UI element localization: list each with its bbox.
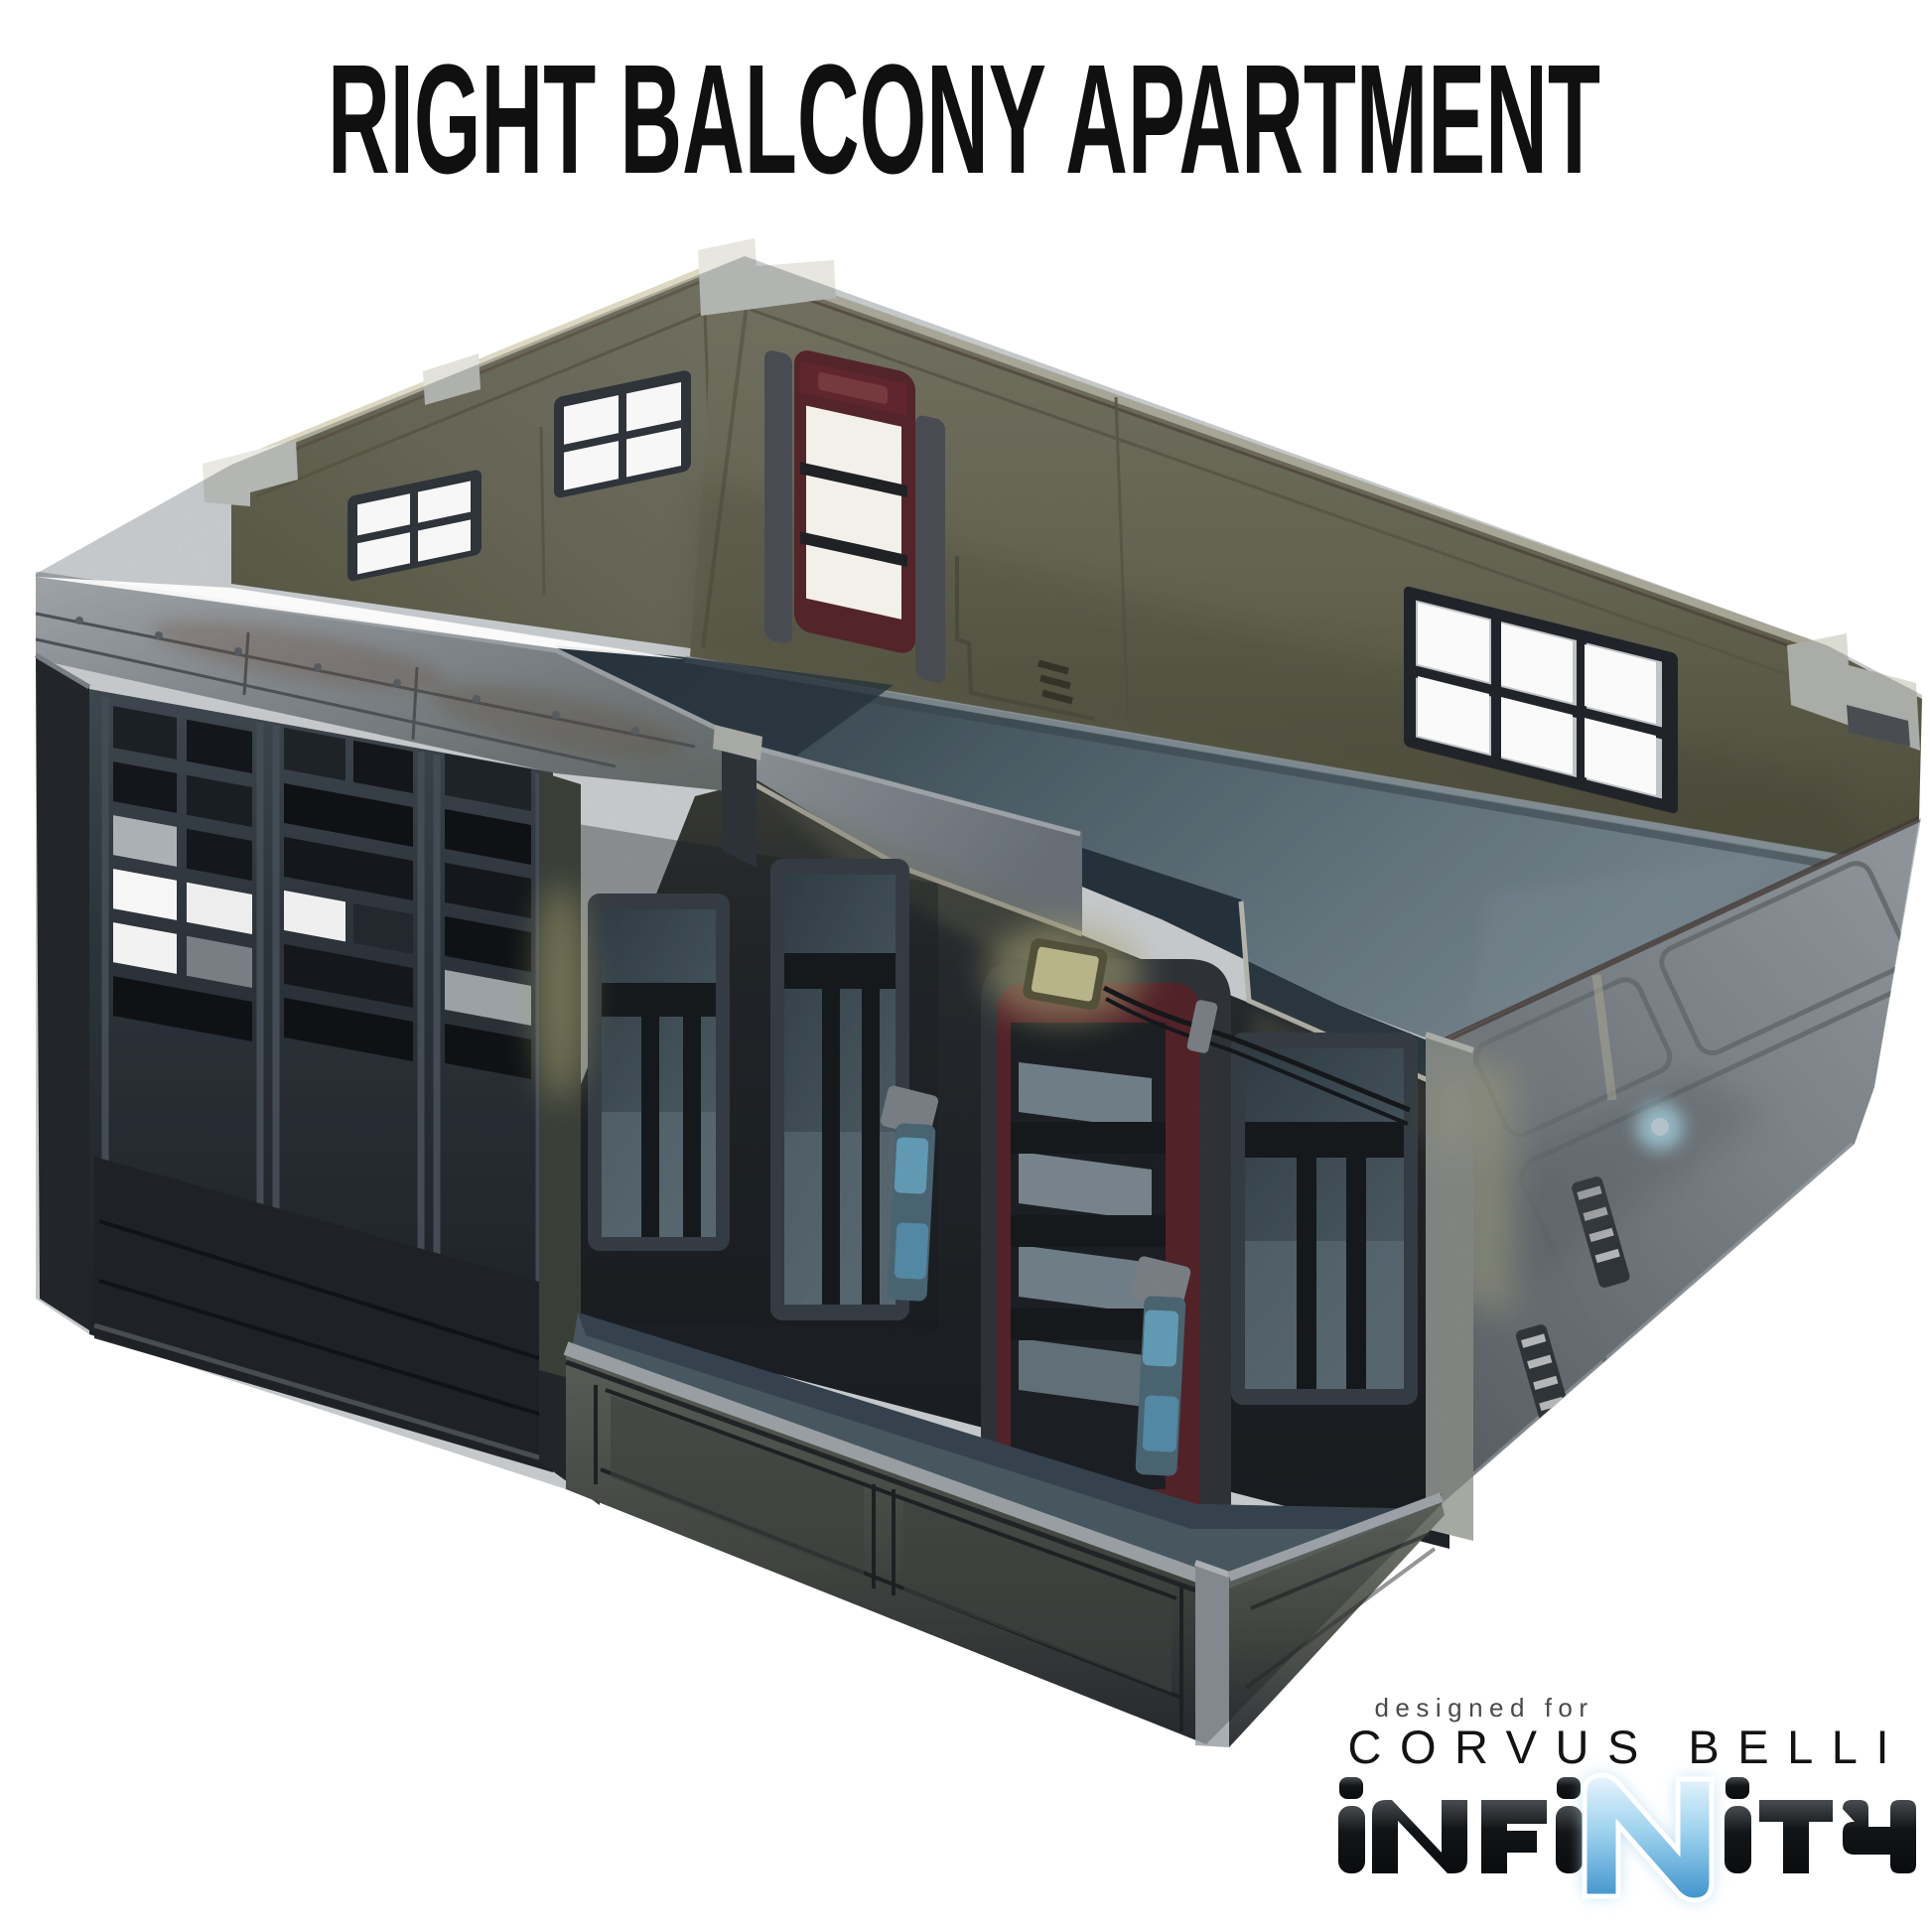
svg-text:RIGHT BALCONY APARTMENT: RIGHT BALCONY APARTMENT [328,33,1600,207]
svg-text:designed for: designed for [1374,1693,1593,1723]
svg-text:CORVUS BELLI: CORVUS BELLI [1348,1721,1889,1773]
